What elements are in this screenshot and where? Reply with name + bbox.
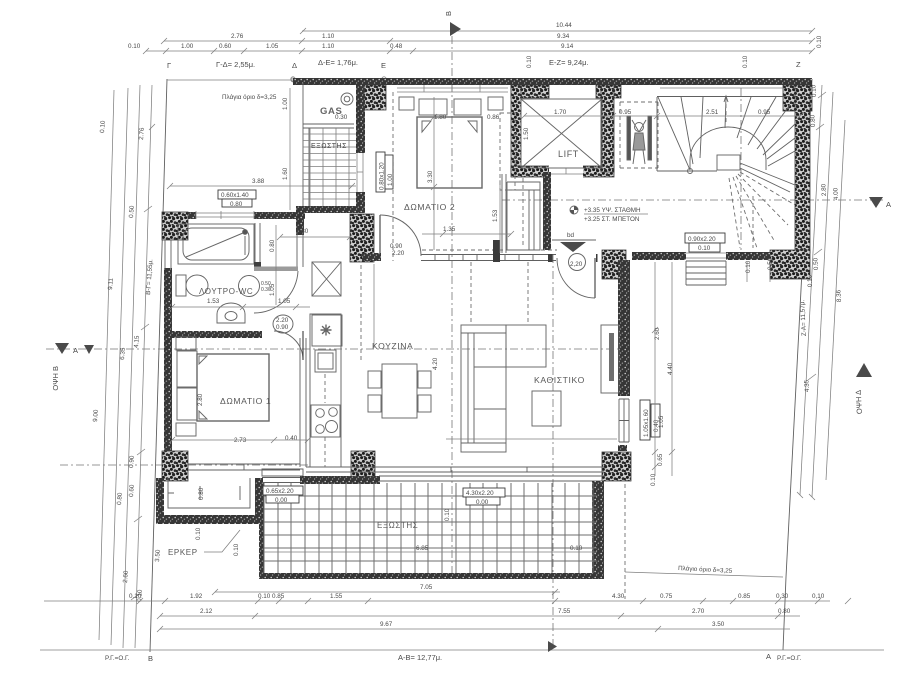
svg-text:2.60: 2.60 xyxy=(122,570,130,583)
svg-text:0.65: 0.65 xyxy=(657,453,664,466)
svg-text:3.50: 3.50 xyxy=(154,549,162,562)
svg-text:1.70: 1.70 xyxy=(554,109,567,116)
svg-text:2.73: 2.73 xyxy=(234,437,247,444)
svg-text:ΕΡΚΕΡ: ΕΡΚΕΡ xyxy=(168,548,198,557)
svg-text:3.50: 3.50 xyxy=(712,621,725,628)
svg-text:Πλάγια όριο δ=3,25: Πλάγια όριο δ=3,25 xyxy=(222,93,277,101)
svg-text:0.60x1.40: 0.60x1.40 xyxy=(221,192,249,199)
svg-text:1.05: 1.05 xyxy=(266,43,279,50)
svg-text:Α-B= 12,77μ.: Α-B= 12,77μ. xyxy=(398,653,442,662)
svg-text:8.36: 8.36 xyxy=(835,289,843,302)
svg-text:0.85: 0.85 xyxy=(738,593,751,600)
svg-text:Δ: Δ xyxy=(292,61,297,70)
svg-text:2.20: 2.20 xyxy=(392,250,405,257)
svg-text:1.80: 1.80 xyxy=(296,228,309,235)
svg-text:bd: bd xyxy=(567,232,575,239)
svg-text:1.05: 1.05 xyxy=(278,298,291,305)
svg-text:4.15: 4.15 xyxy=(133,335,141,348)
svg-text:Ζ: Ζ xyxy=(796,60,801,69)
svg-text:0.10: 0.10 xyxy=(698,245,711,252)
svg-text:0.10: 0.10 xyxy=(650,473,657,486)
svg-text:0.00: 0.00 xyxy=(476,499,489,506)
svg-text:3.88: 3.88 xyxy=(252,178,265,185)
svg-text:0.10: 0.10 xyxy=(99,120,107,133)
svg-text:0.40: 0.40 xyxy=(285,435,298,442)
svg-text:0.30: 0.30 xyxy=(335,114,348,121)
svg-text:4.35: 4.35 xyxy=(803,379,811,392)
svg-text:ΟΨΗ Δ: ΟΨΗ Δ xyxy=(854,390,864,415)
svg-text:0.80: 0.80 xyxy=(198,487,205,500)
svg-text:0.65x2.20: 0.65x2.20 xyxy=(266,488,294,495)
svg-text:9.67: 9.67 xyxy=(380,621,393,628)
svg-text:6.35: 6.35 xyxy=(119,347,127,360)
svg-text:9.00: 9.00 xyxy=(92,409,100,422)
svg-text:0.50: 0.50 xyxy=(812,257,820,270)
svg-text:1.50: 1.50 xyxy=(523,127,530,140)
svg-text:3.30: 3.30 xyxy=(427,170,434,183)
svg-text:0.80x1.20: 0.80x1.20 xyxy=(379,162,386,190)
svg-text:1.05x1.60: 1.05x1.60 xyxy=(643,409,650,437)
svg-text:Γ-Δ= 2,55μ.: Γ-Δ= 2,55μ. xyxy=(216,60,255,69)
svg-text:4.40: 4.40 xyxy=(667,362,674,375)
svg-text:1.10: 1.10 xyxy=(322,33,335,40)
svg-text:ΚΑΘΙΣΤΙΚΟ: ΚΑΘΙΣΤΙΚΟ xyxy=(534,375,585,385)
svg-text:7.55: 7.55 xyxy=(558,608,571,615)
svg-text:1.05: 1.05 xyxy=(269,283,276,296)
svg-text:B: B xyxy=(148,654,153,663)
svg-text:0.10: 0.10 xyxy=(745,260,752,273)
svg-text:1.00: 1.00 xyxy=(181,43,194,50)
svg-text:0.00: 0.00 xyxy=(275,497,288,504)
svg-text:1.05: 1.05 xyxy=(658,415,665,428)
svg-text:ΕΞΩΣΤΗΣ: ΕΞΩΣΤΗΣ xyxy=(377,521,418,530)
svg-text:0.86: 0.86 xyxy=(487,114,500,121)
svg-text:1.53: 1.53 xyxy=(207,298,220,305)
svg-text:9.34: 9.34 xyxy=(557,33,570,40)
svg-text:1.00: 1.00 xyxy=(282,97,289,110)
svg-text:2.51: 2.51 xyxy=(706,109,719,116)
svg-text:7.05: 7.05 xyxy=(420,584,433,591)
svg-text:2.76: 2.76 xyxy=(231,33,244,40)
svg-text:9.14: 9.14 xyxy=(561,43,574,50)
svg-text:2.20: 2.20 xyxy=(276,317,289,324)
svg-text:ΚΟΥΖΙΝΑ: ΚΟΥΖΙΝΑ xyxy=(372,341,413,351)
svg-text:0.95: 0.95 xyxy=(758,109,771,116)
svg-text:9.11: 9.11 xyxy=(107,277,115,290)
svg-text:0.90x2.20: 0.90x2.20 xyxy=(688,236,716,243)
svg-text:2.80: 2.80 xyxy=(197,393,204,406)
svg-text:0.80: 0.80 xyxy=(230,201,243,208)
svg-text:6.85: 6.85 xyxy=(416,545,429,552)
svg-text:ΔΩΜΑΤΙΟ 2: ΔΩΜΑΤΙΟ 2 xyxy=(404,202,455,212)
svg-text:2,20: 2,20 xyxy=(570,261,583,268)
svg-text:4.30x2.20: 4.30x2.20 xyxy=(466,490,494,497)
svg-text:+3.25 ΣΤ. ΜΠΕΤΟΝ: +3.25 ΣΤ. ΜΠΕΤΟΝ xyxy=(584,216,640,223)
svg-text:0.10: 0.10 xyxy=(195,527,202,540)
svg-text:0.90: 0.90 xyxy=(276,324,289,331)
svg-text:ΕΞΩΣΤΗΣ: ΕΞΩΣΤΗΣ xyxy=(311,143,347,150)
svg-text:1.10: 1.10 xyxy=(322,43,335,50)
svg-text:+3.35 ΥΨ. ΣΤΑΘΜΗ: +3.35 ΥΨ. ΣΤΑΘΜΗ xyxy=(584,207,641,214)
svg-text:1.60: 1.60 xyxy=(282,167,289,180)
svg-text:2.80: 2.80 xyxy=(820,183,828,196)
svg-text:A: A xyxy=(73,346,78,355)
svg-text:Ε-Ζ= 9,24μ.: Ε-Ζ= 9,24μ. xyxy=(549,58,589,67)
svg-text:4.20: 4.20 xyxy=(432,357,439,370)
svg-text:Ε: Ε xyxy=(381,61,386,70)
svg-text:Γ: Γ xyxy=(167,61,171,70)
svg-text:ΛΟΥΤΡΟ-WC: ΛΟΥΤΡΟ-WC xyxy=(199,287,253,296)
svg-text:1.53: 1.53 xyxy=(492,209,499,222)
svg-text:0.85: 0.85 xyxy=(272,593,285,600)
svg-text:0.80: 0.80 xyxy=(116,492,124,505)
svg-text:2.76: 2.76 xyxy=(138,127,146,140)
svg-text:0.10: 0.10 xyxy=(129,593,142,600)
svg-text:B: B xyxy=(444,11,453,16)
svg-text:0.10: 0.10 xyxy=(570,545,583,552)
svg-text:0.10: 0.10 xyxy=(526,55,533,68)
svg-text:0.10: 0.10 xyxy=(444,508,451,521)
svg-text:0.60: 0.60 xyxy=(219,43,232,50)
svg-text:0.10: 0.10 xyxy=(233,543,240,556)
svg-text:1.00: 1.00 xyxy=(387,173,394,186)
svg-text:0.50: 0.50 xyxy=(767,257,774,270)
svg-text:Ρ.Γ.=Ο.Γ.: Ρ.Γ.=Ο.Γ. xyxy=(105,655,130,662)
svg-text:0.95: 0.95 xyxy=(619,109,632,116)
svg-text:10.44: 10.44 xyxy=(556,22,572,29)
svg-text:2.70: 2.70 xyxy=(692,608,705,615)
svg-text:LIFT: LIFT xyxy=(558,149,579,159)
svg-text:0.10: 0.10 xyxy=(258,593,271,600)
svg-text:0,10: 0,10 xyxy=(812,593,825,600)
svg-text:1.92: 1.92 xyxy=(190,593,203,600)
svg-text:ΔΩΜΑΤΙΟ 1: ΔΩΜΑΤΙΟ 1 xyxy=(220,396,271,406)
svg-text:A: A xyxy=(886,200,891,209)
svg-text:0.10: 0.10 xyxy=(816,35,823,48)
svg-text:1.55: 1.55 xyxy=(330,593,343,600)
svg-text:2.60: 2.60 xyxy=(654,327,661,340)
svg-text:4.30: 4.30 xyxy=(612,593,625,600)
svg-text:4.00: 4.00 xyxy=(832,187,840,200)
svg-text:0.80: 0.80 xyxy=(269,239,276,252)
svg-text:0.60: 0.60 xyxy=(128,484,136,497)
svg-text:0.50: 0.50 xyxy=(128,205,136,218)
svg-text:ΟΨΗ Β: ΟΨΗ Β xyxy=(51,366,60,391)
svg-text:Α: Α xyxy=(766,652,771,661)
svg-text:Ρ.Γ.=Ο.Γ.: Ρ.Γ.=Ο.Γ. xyxy=(777,655,802,662)
svg-text:0.90: 0.90 xyxy=(128,455,136,468)
svg-text:0.10: 0.10 xyxy=(128,43,141,50)
svg-text:0.80: 0.80 xyxy=(809,114,817,127)
svg-text:Δ-Ε= 1,76μ.: Δ-Ε= 1,76μ. xyxy=(318,58,358,67)
svg-text:0.10: 0.10 xyxy=(742,55,749,68)
svg-text:2.12: 2.12 xyxy=(200,608,213,615)
svg-text:1.35: 1.35 xyxy=(443,226,456,233)
svg-text:0.48: 0.48 xyxy=(390,43,403,50)
svg-text:0.75: 0.75 xyxy=(660,593,673,600)
svg-text:0.80: 0.80 xyxy=(778,608,791,615)
svg-text:0.30: 0.30 xyxy=(776,593,789,600)
svg-text:1.80: 1.80 xyxy=(434,114,447,121)
svg-text:0.90: 0.90 xyxy=(390,243,403,250)
